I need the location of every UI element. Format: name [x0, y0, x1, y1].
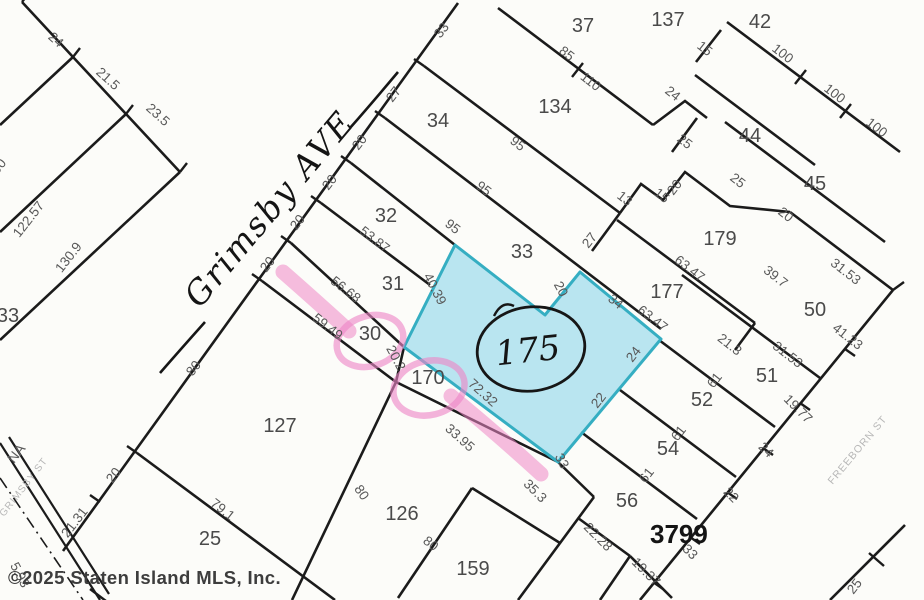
lot-number-label: 31: [382, 273, 404, 295]
lot-line: [592, 213, 620, 251]
dimension-label: 24: [662, 83, 683, 104]
block-number: 3799: [650, 519, 708, 549]
dimension-label: 20: [775, 204, 796, 225]
dimension-label: 21.3: [715, 330, 745, 358]
lot-number-label: 50: [804, 299, 826, 321]
dimension-label: 95: [442, 216, 463, 237]
lot-number-label: 25: [199, 528, 221, 550]
dimension-label: 22: [721, 484, 742, 505]
lot-number-label: 42: [749, 11, 771, 33]
lot-line: [292, 382, 396, 600]
lot-number-label: 30: [359, 323, 381, 345]
lot-number-label: 34: [427, 110, 449, 132]
dimension-label: 130.9: [52, 239, 85, 275]
lot-number-label: 56: [616, 490, 638, 512]
dimension-label: 79.1: [208, 495, 238, 523]
side-line: [0, 172, 180, 340]
lot-number-label: 51: [756, 365, 778, 387]
dimension-label: 25: [674, 131, 695, 152]
dimension-label: 80: [351, 482, 372, 503]
lot-number-label: 44: [739, 125, 761, 147]
side-line: [0, 114, 126, 232]
lot-number-label: 126: [385, 503, 418, 525]
lot-line: [790, 212, 893, 290]
dimension-label: 31.53: [828, 255, 864, 288]
dimension-label: 53.87: [357, 223, 393, 256]
staircase-line: [620, 172, 790, 213]
lot-line: [695, 75, 815, 165]
lot-number-label: 33: [0, 305, 19, 327]
dimension-label: 22.28: [581, 520, 616, 555]
lot-number-label: 52: [691, 389, 713, 411]
dimension-label: 100: [863, 115, 890, 141]
lot-number-label: 37: [572, 15, 594, 37]
dimension-label: 100: [0, 156, 9, 183]
dimension-label: 24: [756, 439, 778, 461]
lot-number-label: 45: [804, 173, 826, 195]
dimension-label: 25: [727, 170, 748, 191]
lot-number-label: 127: [263, 415, 296, 437]
dimension-label: 27: [579, 230, 600, 251]
dimension-label: 33.95: [442, 421, 477, 455]
dimension-label: 21.5: [93, 64, 123, 93]
lot-number-label: 137: [651, 9, 684, 31]
lot-number-label: 177: [650, 281, 683, 303]
dimension-label: 56.68: [328, 273, 364, 306]
lot-number-label: 32: [375, 205, 397, 227]
lot-number-label: 170: [411, 367, 444, 389]
copyright-text: ©2025 Staten Island MLS, Inc.: [8, 567, 281, 588]
dimension-label: 39.7: [761, 262, 791, 290]
lot-175-handwritten: 175: [493, 328, 562, 375]
dimension-label: 23.5: [143, 100, 173, 129]
rear-zigzag-boundary: [22, 2, 180, 172]
dimension-label: 20: [103, 465, 124, 486]
side-line: [0, 57, 73, 125]
plat-map: 175 Grimsby AVE 371374213434444532179333…: [0, 0, 924, 600]
corner-line: [830, 525, 905, 600]
lot-number-label: 33: [511, 241, 533, 263]
dimension-label: 85: [556, 43, 577, 64]
dimension-label: 25: [844, 576, 865, 597]
lot-number-label: 134: [538, 96, 571, 118]
lot-number-labels: 3713742134344445321793331177503051170521…: [0, 9, 826, 580]
dimension-label: 95: [507, 133, 528, 154]
freeborn-st-label: FREEBORN ST: [826, 413, 890, 486]
dimension-label: 100: [769, 41, 796, 67]
dimension-label: 95: [473, 178, 494, 199]
map-canvas: 175 Grimsby AVE 371374213434444532179333…: [0, 0, 924, 600]
lot-number-label: 179: [703, 228, 736, 250]
dimension-label: 100: [821, 81, 848, 107]
dimension-label: 41.23: [830, 320, 866, 353]
dimension-label: 61: [636, 465, 657, 486]
staircase-line: [653, 101, 707, 125]
dimension-label: 13: [614, 188, 635, 209]
dimension-label: 35.3: [521, 476, 550, 505]
lot-line: [600, 556, 630, 600]
lot-line: [518, 497, 594, 600]
lot-number-label: 159: [456, 558, 489, 580]
